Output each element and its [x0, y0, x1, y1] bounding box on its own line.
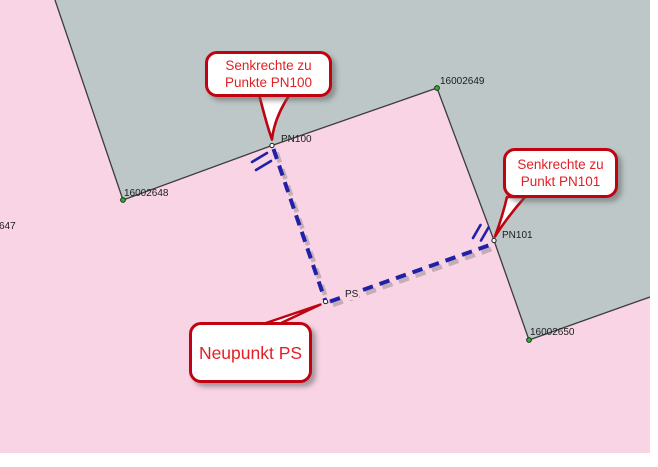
callout-pn100-line1: Senkrechte zu	[225, 57, 311, 74]
callout-pn101-line1: Senkrechte zu	[517, 156, 603, 173]
point-label-pn101: PN101	[502, 230, 533, 241]
callout-senkrechte-pn100: Senkrechte zu Punkte PN100	[205, 51, 332, 97]
map-canvas[interactable]: 647 16002648 16002649 16002650 PN100 PN1…	[0, 0, 650, 453]
point-marker-pn101[interactable]	[492, 238, 496, 242]
perpendicular-ticks-pn101	[473, 225, 489, 241]
point-marker-pn100[interactable]	[270, 143, 274, 147]
callout-neupunkt-ps: Neupunkt PS	[189, 322, 312, 383]
point-label-pn100: PN100	[281, 134, 312, 145]
point-label-ps: PS	[344, 289, 359, 300]
point-marker-ps[interactable]	[323, 299, 327, 303]
point-marker-16002650[interactable]	[527, 338, 532, 343]
callout-pn100-line2: Punkte PN100	[225, 74, 312, 91]
point-marker-16002649[interactable]	[435, 86, 440, 91]
point-label-16002648: 16002648	[124, 188, 169, 199]
callout-pn101-line2: Punkt PN101	[521, 173, 601, 190]
point-label-16002649: 16002649	[440, 76, 485, 87]
callout-senkrechte-pn101: Senkrechte zu Punkt PN101	[503, 148, 618, 198]
point-label-16002650: 16002650	[530, 327, 575, 338]
callout-ps-line1: Neupunkt PS	[199, 343, 302, 363]
perpendicular-ticks-pn100	[252, 153, 271, 170]
construction-line-shadow	[277, 153, 329, 304]
point-label-647: 647	[0, 221, 16, 232]
map-viewport: 647 16002648 16002649 16002650 PN100 PN1…	[0, 0, 658, 467]
